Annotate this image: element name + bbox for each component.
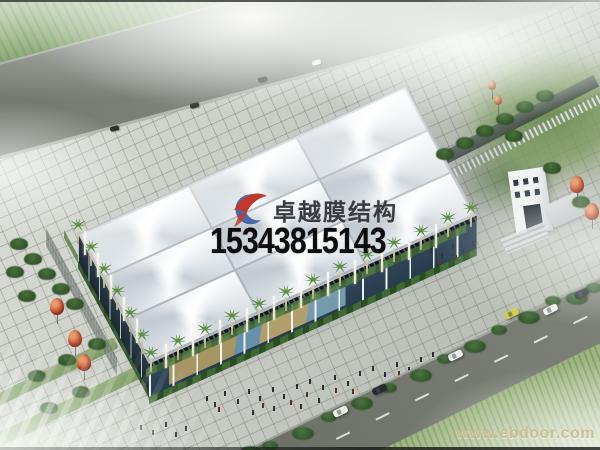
light-pole [84,231,86,255]
small-tree [38,268,56,280]
light-pole [246,308,248,332]
small-tree [88,338,106,350]
window-row [515,188,545,198]
light-pole [354,260,356,284]
balloon-decoration [585,203,599,220]
small-tree [18,290,36,302]
light-pole [110,275,112,299]
window-row [513,176,543,186]
light-pole [136,319,138,343]
roadside-shrub [292,427,314,440]
light-pole [97,253,99,277]
light-pole [165,344,167,368]
palm-tree [440,211,456,237]
light-pole [435,224,437,248]
fence-tree [476,125,494,137]
palm-tree [170,334,186,360]
light-pole [300,284,302,308]
fence-tree [456,137,474,149]
palm-tree [197,322,213,348]
small-tree [24,253,42,265]
small-tree [6,266,24,278]
roadside-shrub [464,340,486,353]
light-pole [219,320,221,344]
watermark-text: www.ebdoor.com [456,425,595,443]
palm-tree [413,224,429,250]
roadside-shrub [351,397,373,410]
fence-tree [436,148,454,160]
top-border-line [0,0,600,2]
fence-tree [536,90,554,102]
balloon-decoration [68,330,82,347]
roadside-shrub [491,325,507,335]
small-tree [58,354,76,366]
palm-tree [251,297,267,323]
light-pole [408,236,410,260]
small-tree [66,298,84,310]
roadside-shrub [410,369,432,382]
small-tree [40,402,58,414]
palm-tree [278,285,294,311]
fence-tree [516,101,534,113]
small-tree [28,370,46,382]
field-tree [543,162,561,174]
light-pole [192,332,194,356]
palm-tree [332,260,348,286]
light-pole [327,272,329,296]
balloon-decoration [570,176,584,193]
small-tree [10,238,28,250]
palm-tree [463,201,479,227]
palm-tree [305,273,321,299]
field-tree [505,130,523,142]
balloon-decoration [50,298,64,315]
balloon-decoration [494,95,502,105]
balloon-decoration [488,80,496,90]
balloon-decoration [77,354,91,371]
small-tree [52,283,70,295]
phone-number: 15343815143 [210,220,386,262]
rendering-canvas: 卓越膜结构 15343815143 www.ebdoor.com [0,0,600,450]
small-tree [72,386,90,398]
roadside-shrub [518,311,540,324]
fence-tree [496,113,514,125]
palm-tree [224,309,240,335]
light-pole [273,296,275,320]
light-pole [123,297,125,321]
palm-tree [386,236,402,262]
